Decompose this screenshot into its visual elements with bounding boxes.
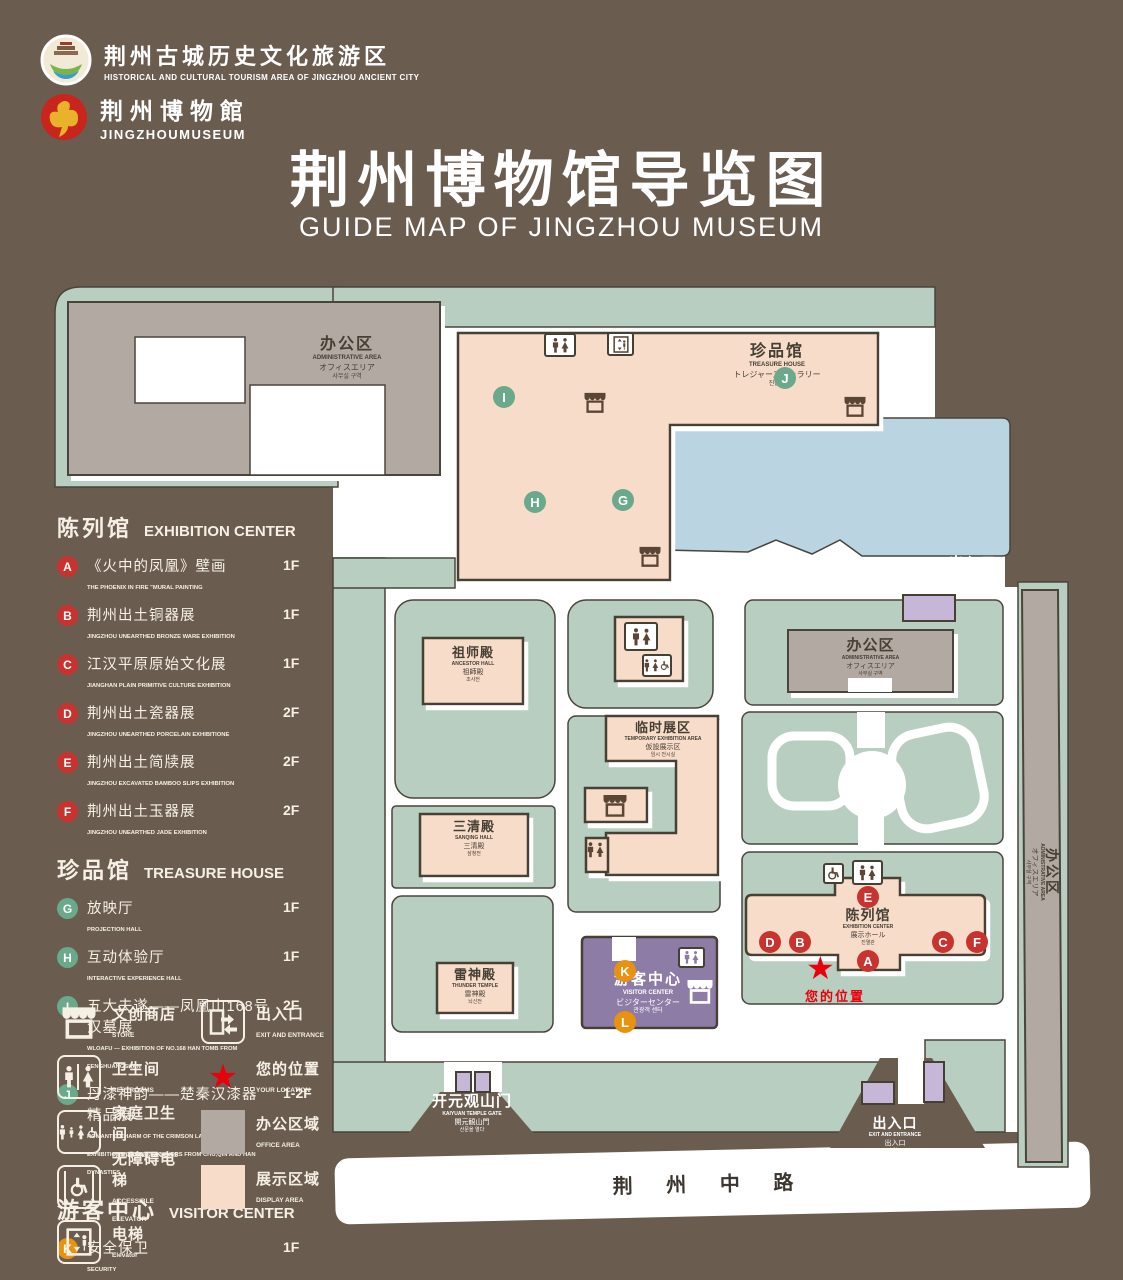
map-badge-I: I <box>493 386 515 408</box>
restroom-icon <box>624 622 658 651</box>
south-exit-path <box>898 1058 924 1104</box>
elevator-icon <box>607 332 634 356</box>
label-sanqing-hall: 三清殿 SANQING HALL 三清殿 삼청전 <box>420 820 528 858</box>
south-exit-block-right <box>924 1062 944 1102</box>
gate-path <box>444 1062 502 1092</box>
label-admin-east: 办公区 ADMINISTRATIVE AREA オフィスエリア 사무실 구역 <box>788 638 953 678</box>
lake <box>630 418 1010 556</box>
map-badge-C: C <box>932 931 954 953</box>
south-exit-block-left <box>862 1082 894 1104</box>
visitor-center-notch <box>612 937 636 961</box>
map-badge-E: E <box>857 886 879 908</box>
map-badge-K: K <box>614 960 636 982</box>
label-ancestor-hall: 祖师殿 ANCESTOR HALL 祖師殿 조사전 <box>423 646 523 684</box>
map-badge-J: J <box>774 367 796 389</box>
restroom-icon <box>587 842 604 858</box>
restroom-icon <box>678 947 705 968</box>
admin-east-notch <box>848 678 892 692</box>
label-exit-northeast: 出入口 EXIT AND ENTRANCE 出入口 출입구 <box>925 556 1020 596</box>
museum-guide-map-poster: 荆州古城历史文化旅游区 HISTORICAL AND CULTURAL TOUR… <box>0 0 1123 1280</box>
map-canvas <box>0 0 1123 1280</box>
restroom-icon <box>544 333 576 357</box>
admin-courtyard-2 <box>250 385 385 475</box>
map-badge-D: D <box>759 931 781 953</box>
label-visitor-center: 游客中心 VISITOR CENTER ビジターセンター 관광객 센터 <box>592 972 704 1015</box>
label-exit-south: 出入口 EXIT AND ENTRANCE 出入口 출입구 <box>835 1116 955 1155</box>
label-admin-northwest: 办公区 ADMINISTRATIVE AREA オフィスエリア 사무실 구역 <box>262 336 432 380</box>
location-star-icon: ★ <box>806 952 835 984</box>
store-icon <box>843 396 867 417</box>
admin-courtyard-1 <box>135 337 245 403</box>
map-badge-F: F <box>966 931 988 953</box>
restroom-icon <box>852 860 883 885</box>
label-exhibition-center: 陈列馆 EXHIBITION CENTER 展示ホール 진열관 <box>813 908 923 947</box>
map-badge-G: G <box>612 489 634 511</box>
label-temporary-exhibition: 临时展区 TEMPORARY EXHIBITION AREA 仮設展示区 임시 … <box>604 721 722 759</box>
label-thunder-temple: 雷神殿 THUNDER TEMPLE 雷神殿 뇌신전 <box>437 968 513 1006</box>
map-badge-A: A <box>857 950 879 972</box>
northeast-exit-structure <box>903 595 955 621</box>
gate-post-right <box>475 1072 490 1092</box>
map-badge-L: L <box>614 1011 636 1033</box>
your-location-label: 您的位置 <box>790 986 880 1005</box>
store-icon <box>602 794 628 817</box>
green-strip-west <box>333 558 385 1068</box>
label-kaiyuan-gate: 开元观山门 KAIYUAN TEMPLE GATE 開元観山門 산문을 열다 <box>402 1094 542 1134</box>
accessible-elevator-icon <box>823 863 844 884</box>
store-icon <box>583 392 607 413</box>
gate-post-left <box>456 1072 471 1092</box>
family-restroom-icon <box>642 654 672 677</box>
green-connector-west <box>333 558 455 588</box>
store-icon <box>638 546 662 567</box>
exit-door-icon <box>905 565 927 585</box>
map-badge-H: H <box>524 491 546 513</box>
label-admin-strip-east: 办公区 ADMINISTRATIVE AREA オフィスエリア 사무실 구역 <box>1025 762 1059 982</box>
